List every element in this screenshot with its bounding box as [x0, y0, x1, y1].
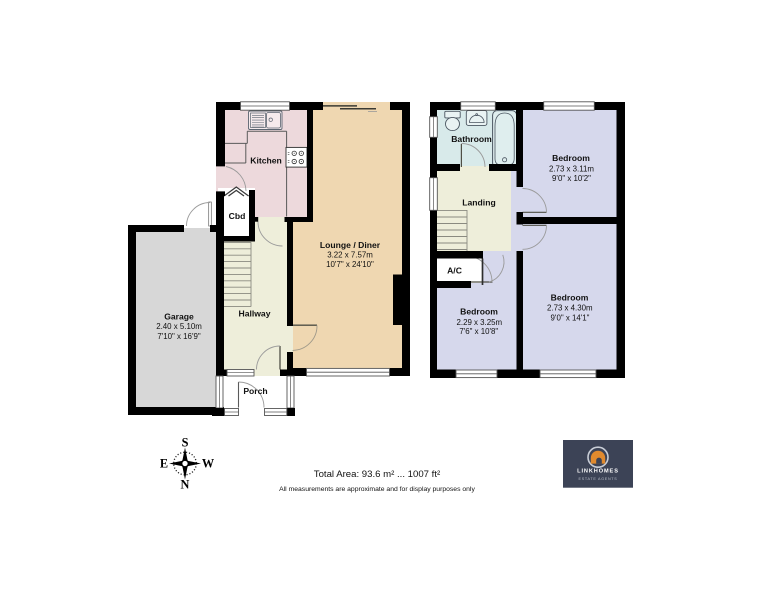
svg-text:2.29 x 3.25m: 2.29 x 3.25m [456, 318, 502, 327]
svg-text:A/C: A/C [447, 266, 462, 276]
svg-text:Lounge / Diner: Lounge / Diner [320, 240, 381, 250]
svg-text:9'0" x 10'2": 9'0" x 10'2" [552, 174, 591, 183]
svg-text:ESTATE AGENTS: ESTATE AGENTS [579, 477, 618, 481]
svg-text:LINKHOMES: LINKHOMES [577, 469, 619, 475]
svg-text:Bedroom: Bedroom [551, 293, 589, 303]
svg-text:Cbd: Cbd [229, 211, 246, 221]
svg-text:7'6" x 10'8": 7'6" x 10'8" [459, 327, 498, 336]
svg-text:Porch: Porch [243, 386, 267, 396]
svg-text:E: E [160, 456, 168, 470]
svg-text:Garage: Garage [164, 312, 194, 322]
svg-text:All measurements are approxima: All measurements are approximate and for… [279, 486, 475, 493]
svg-text:2.73 x 3.11m: 2.73 x 3.11m [549, 165, 594, 174]
svg-text:W: W [202, 456, 215, 470]
svg-text:3.22 x 7.57m: 3.22 x 7.57m [327, 250, 373, 259]
svg-text:S: S [182, 436, 189, 450]
svg-text:Total Area: 93.6 m² ... 1007 f: Total Area: 93.6 m² ... 1007 ft² [314, 469, 441, 480]
svg-text:Bedroom: Bedroom [460, 307, 498, 317]
svg-text:Bedroom: Bedroom [552, 153, 590, 163]
svg-text:7'10" x 16'9": 7'10" x 16'9" [157, 332, 200, 341]
svg-text:2.73 x 4.30m: 2.73 x 4.30m [547, 304, 593, 313]
svg-text:2.40 x 5.10m: 2.40 x 5.10m [156, 322, 202, 331]
svg-text:9'0" x 14'1": 9'0" x 14'1" [551, 313, 590, 322]
svg-text:N: N [181, 477, 190, 491]
svg-text:Hallway: Hallway [238, 309, 270, 319]
svg-text:Kitchen: Kitchen [250, 156, 282, 166]
svg-text:Bathroom: Bathroom [451, 134, 492, 144]
svg-text:Landing: Landing [462, 198, 495, 208]
svg-text:10'7" x 24'10": 10'7" x 24'10" [326, 260, 374, 269]
